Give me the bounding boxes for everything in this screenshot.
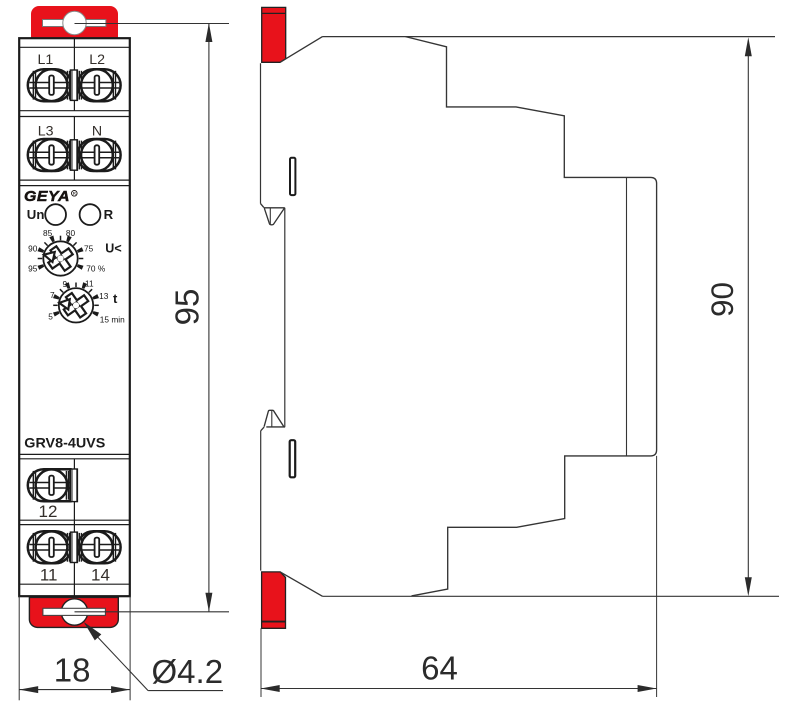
svg-text:t: t (113, 291, 118, 306)
svg-text:75: 75 (84, 244, 94, 254)
svg-text:GEYA: GEYA (24, 189, 70, 205)
svg-text:5: 5 (48, 311, 53, 321)
svg-text:L1: L1 (38, 52, 54, 68)
svg-text:Un: Un (27, 207, 45, 222)
svg-text:9: 9 (62, 279, 67, 289)
svg-text:90: 90 (704, 282, 740, 317)
svg-text:L3: L3 (38, 124, 54, 140)
svg-text:14: 14 (91, 566, 110, 585)
svg-text:GRV8-4UVS: GRV8-4UVS (24, 434, 105, 450)
svg-text:64: 64 (421, 649, 458, 686)
svg-text:N: N (92, 124, 102, 140)
svg-text:13: 13 (99, 291, 109, 301)
svg-text:R: R (104, 207, 114, 222)
svg-text:Ø4.2: Ø4.2 (152, 653, 224, 690)
svg-text:15 min: 15 min (100, 314, 125, 324)
svg-text:70 %: 70 % (86, 264, 106, 274)
svg-text:80: 80 (66, 228, 76, 238)
svg-text:18: 18 (54, 652, 91, 689)
svg-text:95: 95 (169, 289, 206, 326)
svg-text:L2: L2 (89, 52, 105, 68)
svg-text:11: 11 (85, 278, 94, 288)
svg-text:11: 11 (40, 566, 58, 585)
svg-text:7: 7 (50, 290, 55, 300)
svg-text:85: 85 (43, 228, 53, 238)
svg-text:90: 90 (28, 244, 38, 254)
svg-text:95: 95 (28, 264, 38, 274)
svg-text:U<: U< (105, 241, 121, 255)
svg-text:12: 12 (39, 502, 58, 521)
